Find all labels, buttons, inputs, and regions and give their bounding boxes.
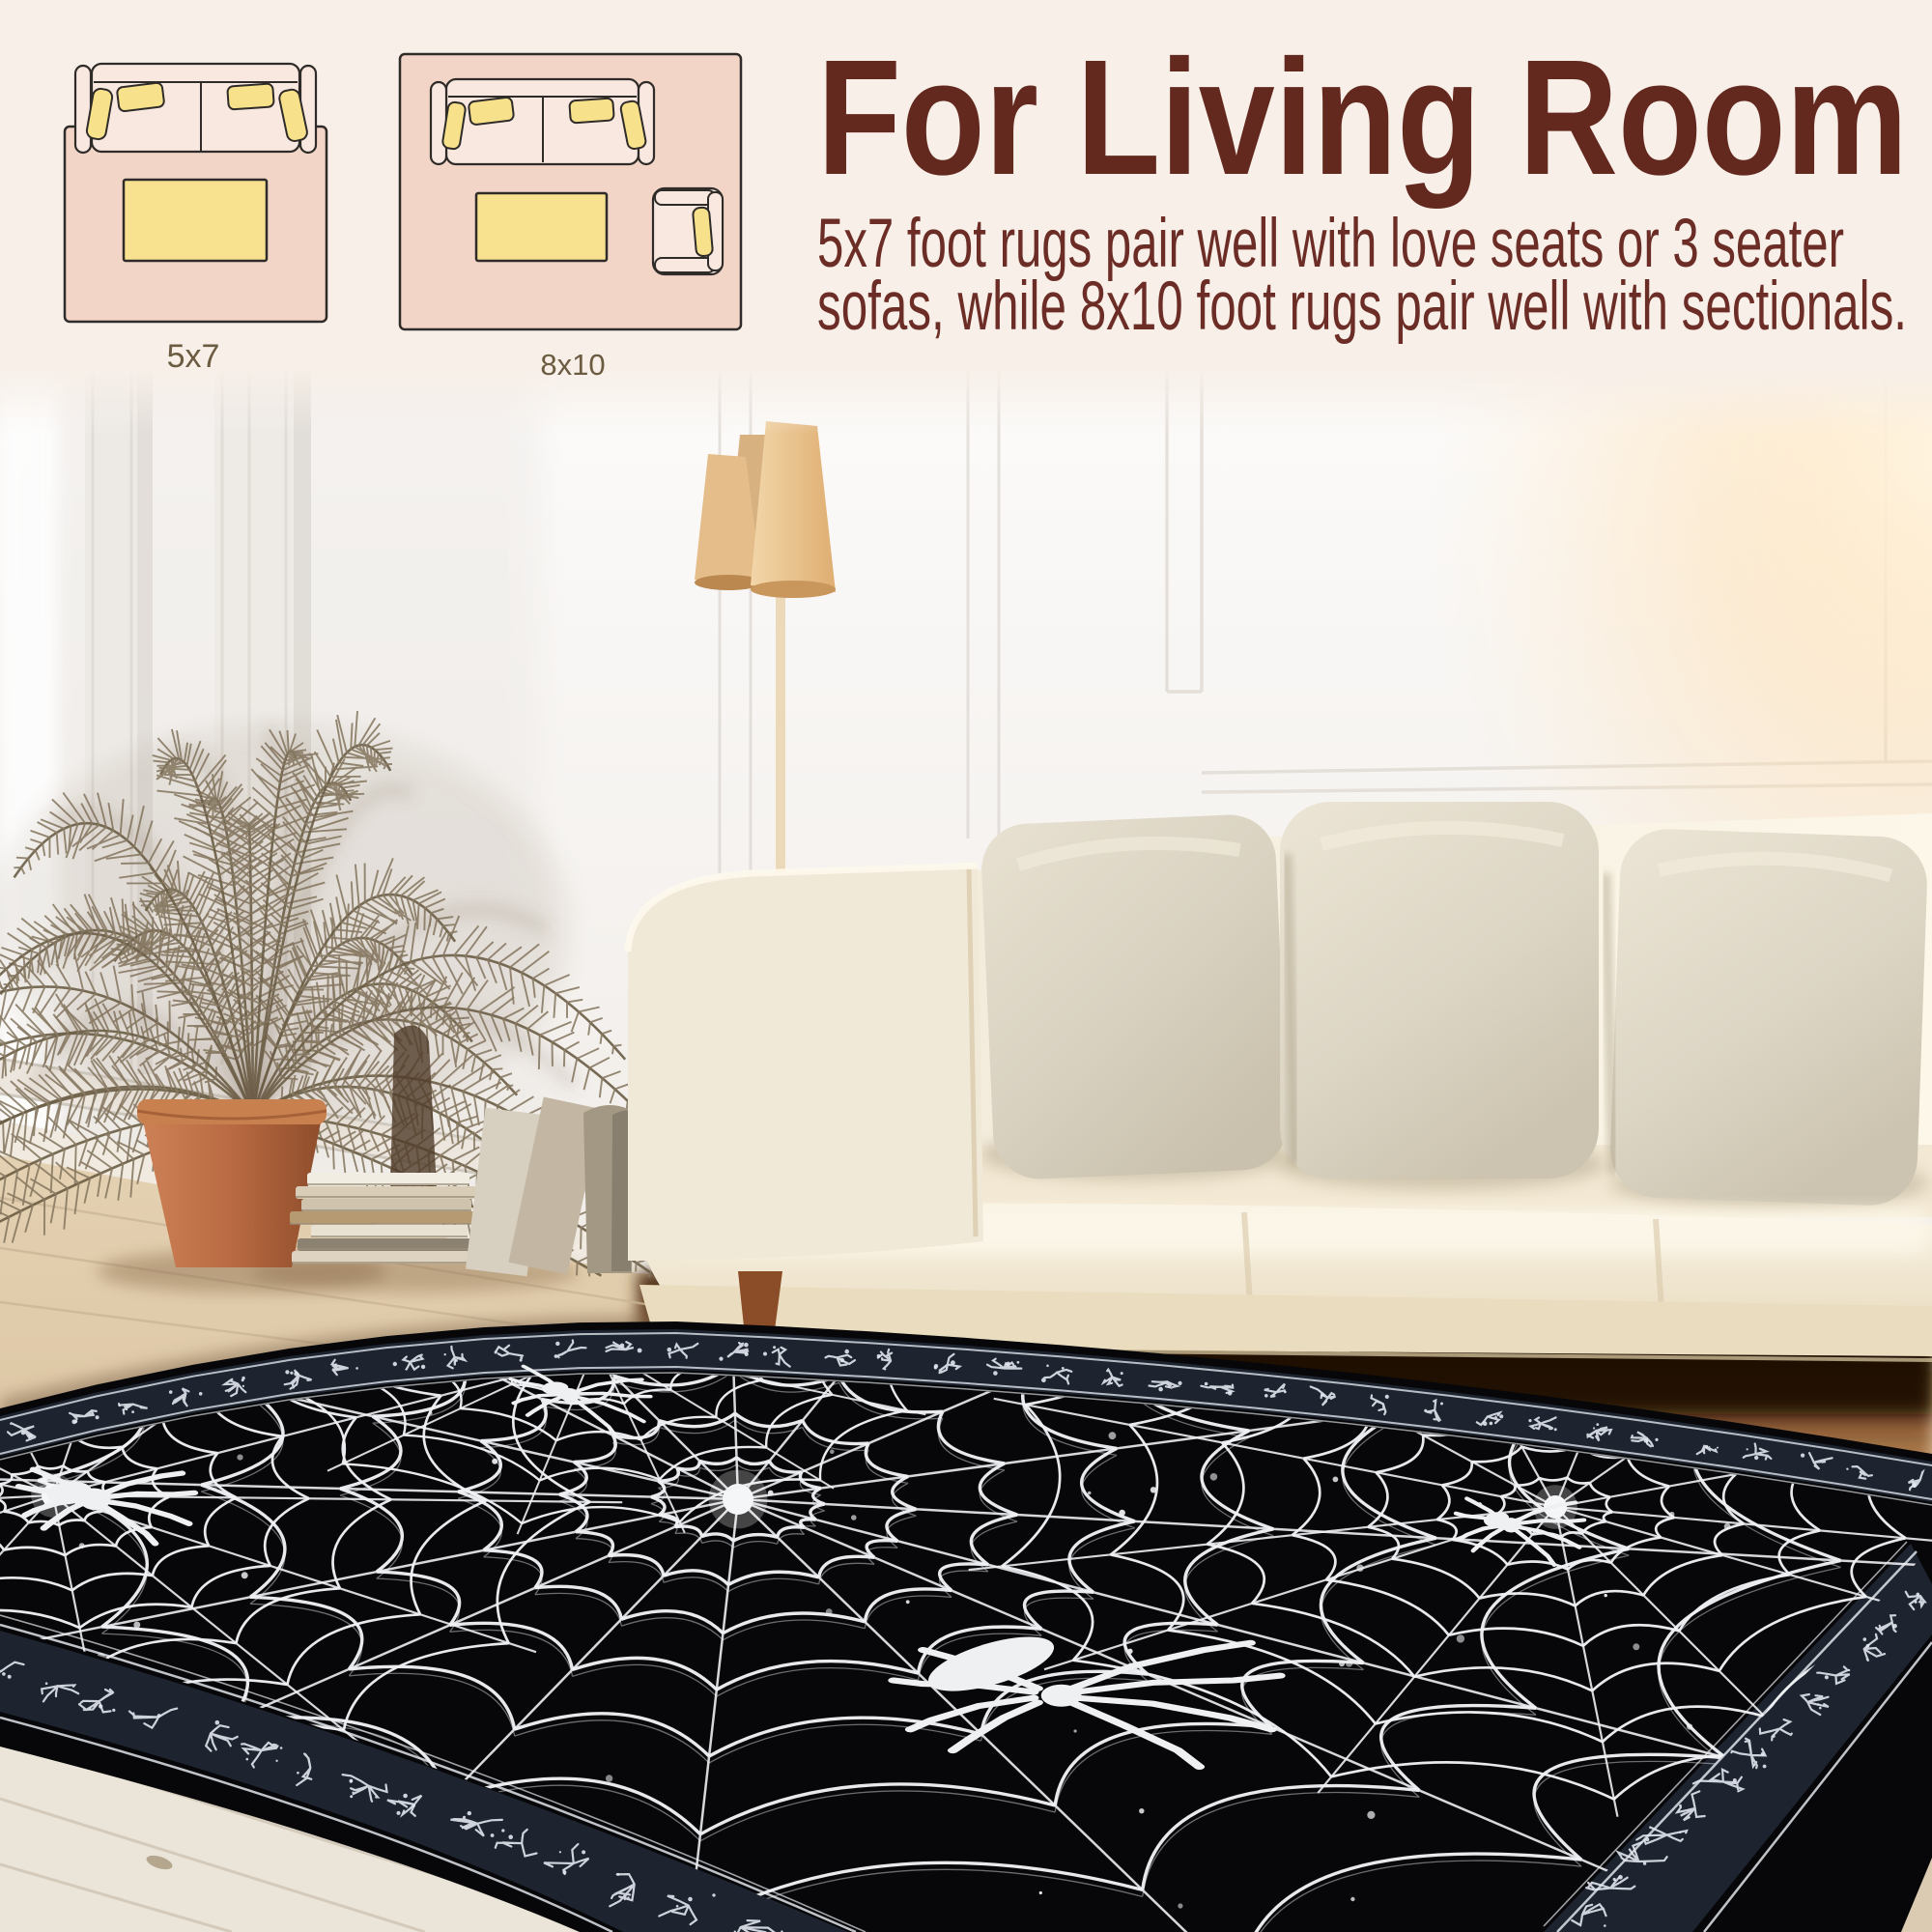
svg-text:8x10: 8x10: [540, 348, 605, 382]
svg-text:sofas, while 8x10 foot rugs pa: sofas, while 8x10 foot rugs pair well wi…: [817, 269, 1907, 345]
svg-text:For Living Room: For Living Room: [817, 26, 1908, 210]
svg-text:5x7: 5x7: [167, 338, 220, 375]
